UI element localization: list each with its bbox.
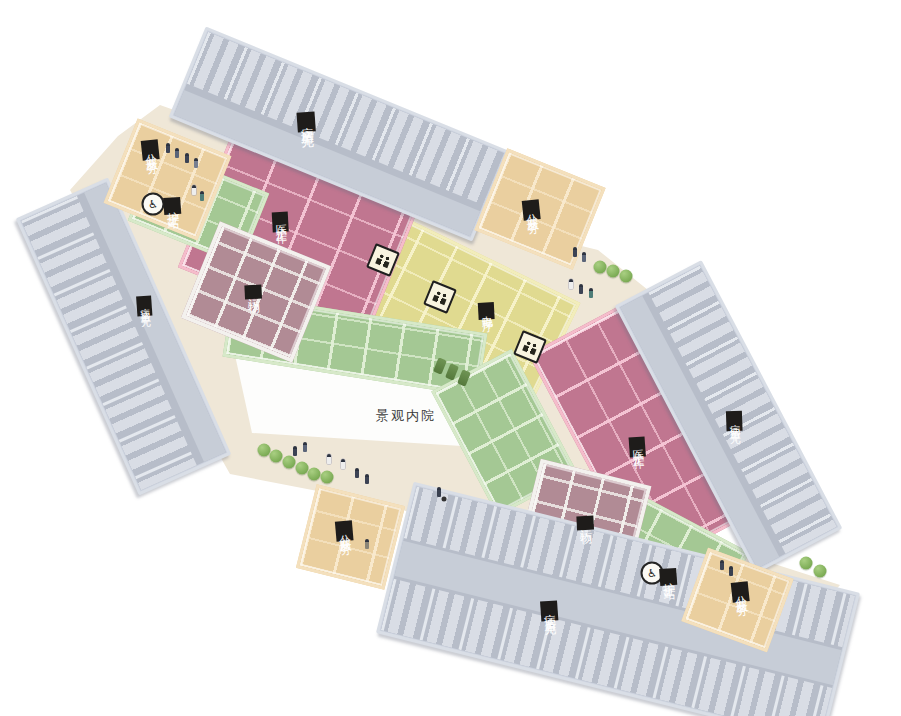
person: [729, 566, 733, 576]
label-ward-unit-top: 病房单元: [297, 111, 316, 132]
person: [175, 148, 179, 158]
person: [185, 153, 189, 163]
person: [303, 442, 307, 452]
label-public-service-top-left: 公共服务: [141, 139, 160, 161]
label-medical-work-top: 医护工作: [272, 212, 289, 233]
person: [569, 279, 573, 289]
label-public-service-bottom-right: 公共服务: [731, 581, 750, 603]
label-ward-unit-bottom: 病房单元: [540, 600, 558, 621]
tree: [308, 468, 321, 481]
person: [166, 143, 170, 153]
person: [582, 252, 586, 262]
tree: [594, 261, 607, 274]
tree: [321, 471, 334, 484]
floor-plan-stage: ♿ ♿ 病房单元 病房单元 病房单元 病房单元 公共服务 公共服务 公共服务 公…: [0, 0, 901, 716]
tree: [814, 565, 827, 578]
person: [194, 158, 198, 168]
label-ward-unit-left: 病房单元: [136, 296, 152, 317]
label-nurse-station-top: 护士站: [163, 197, 181, 215]
label-waste-bottom: 污物: [576, 516, 593, 531]
person: [589, 288, 593, 298]
person-with-wheelchair: [437, 487, 441, 497]
label-public-service-top-right: 公共服务: [522, 199, 541, 221]
label-nurse-station-bottom: 护士站: [659, 568, 677, 586]
elevator-people-glyph: [432, 289, 448, 304]
label-ward-unit-right: 病房单元: [726, 411, 742, 432]
elevator-people-glyph: [522, 339, 538, 354]
label-public-service-bottom-left: 公共服务: [335, 520, 353, 541]
person: [192, 185, 196, 195]
person: [200, 191, 204, 201]
label-medical-work-right: 医护工作: [629, 436, 646, 457]
person: [573, 247, 577, 257]
label-elevator-hall: 电梯厅: [478, 302, 494, 320]
person: [365, 474, 369, 484]
person: [355, 468, 359, 478]
tree: [800, 557, 813, 570]
tree: [607, 265, 620, 278]
label-courtyard: 景观内院: [376, 407, 436, 425]
label-waste-left: 污物: [244, 285, 261, 300]
person: [341, 459, 345, 469]
tree: [283, 456, 296, 469]
person: [327, 454, 331, 464]
wheelchair-icon: [442, 497, 447, 502]
person: [365, 539, 369, 549]
elevator-people-glyph: [375, 252, 391, 267]
person: [293, 446, 297, 456]
nurse-station-icon: ♿: [142, 193, 165, 216]
tree: [620, 270, 633, 283]
person: [720, 560, 724, 570]
tree: [270, 450, 283, 463]
person: [579, 284, 583, 294]
